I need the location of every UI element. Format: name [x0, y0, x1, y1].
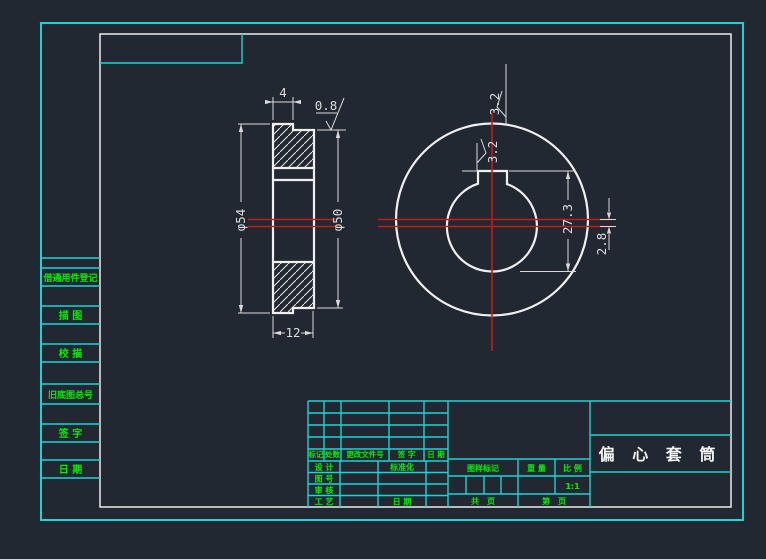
row-drawno: 图 号: [315, 475, 334, 484]
roughness-symbol-keyway: [462, 139, 486, 171]
row-check: 审 核: [315, 485, 334, 495]
revision-col-mark: 标记: [308, 449, 324, 459]
standardization-label: 标准化: [389, 462, 414, 472]
side-strip-grid: [41, 258, 100, 478]
section-view[interactable]: φ54 φ50 4 12 0.8: [233, 85, 346, 340]
scale-value: 1:1: [565, 482, 580, 491]
side-strip-label: 校 描: [59, 347, 82, 360]
hatch-bottom: [273, 262, 314, 313]
side-strip-label: 旧底图总号: [48, 389, 93, 401]
scale-label: 比 例: [563, 463, 582, 473]
weight-label: 重 量: [527, 463, 546, 473]
dim-arrows-28: [607, 213, 611, 234]
section-centerlines[interactable]: [248, 220, 338, 227]
dim-keyway: 27.3: [560, 204, 575, 234]
part-name: 偏 心 套 筒: [599, 445, 722, 464]
side-strip-label: 描 图: [59, 309, 82, 322]
title-block: 标记 处数 更改文件号 签 字 日 期 设 计 图 号 审 核 工 艺 标准化 …: [308, 401, 732, 507]
roughness-outer-value: 3.2: [487, 93, 502, 116]
dim-step-diameter: φ50: [330, 209, 345, 232]
date-label: 日 期: [393, 497, 412, 507]
roughness-face-value: 0.8: [315, 98, 338, 113]
roughness-keyway-value: 3.2: [485, 141, 500, 164]
stamp-label: 图样标记: [467, 463, 499, 473]
side-strip-label: 借通用件登记: [42, 272, 97, 284]
revision-col-sign: 签 字: [397, 449, 416, 459]
top-left-accessory-box: [100, 34, 242, 63]
side-strip-label: 日 期: [59, 463, 82, 476]
side-strip: 借通用件登记 描 图 校 描 旧底图总号 签 字 日 期: [41, 258, 100, 478]
inner-frame: [100, 34, 731, 507]
sheet-no-label: 第 页: [542, 496, 566, 506]
revision-col-date: 日 期: [427, 449, 445, 459]
dim-collar-width: 4: [279, 85, 287, 100]
dim-outer-diameter: φ54: [233, 209, 248, 232]
row-process: 工 艺: [315, 497, 334, 507]
sheet-total-label: 共 页: [471, 496, 495, 506]
revision-col-count: 处数: [324, 449, 340, 459]
dim-width: 12: [285, 325, 300, 340]
dim-eccentricity: 2.8: [594, 233, 609, 256]
revision-col-doc: 更改文件号: [346, 449, 384, 459]
dim-lines-4: [265, 97, 301, 120]
row-design: 设 计: [315, 462, 334, 472]
side-strip-label: 签 字: [58, 427, 82, 440]
cad-sheet: 借通用件登记 描 图 校 描 旧底图总号 签 字 日 期 标记 处数 更改文件号…: [0, 0, 766, 559]
drawing-canvas[interactable]: 借通用件登记 描 图 校 描 旧底图总号 签 字 日 期 标记 处数 更改文件号…: [0, 0, 766, 559]
front-view[interactable]: 3.2 3.2 27.3 2.8: [378, 64, 616, 351]
